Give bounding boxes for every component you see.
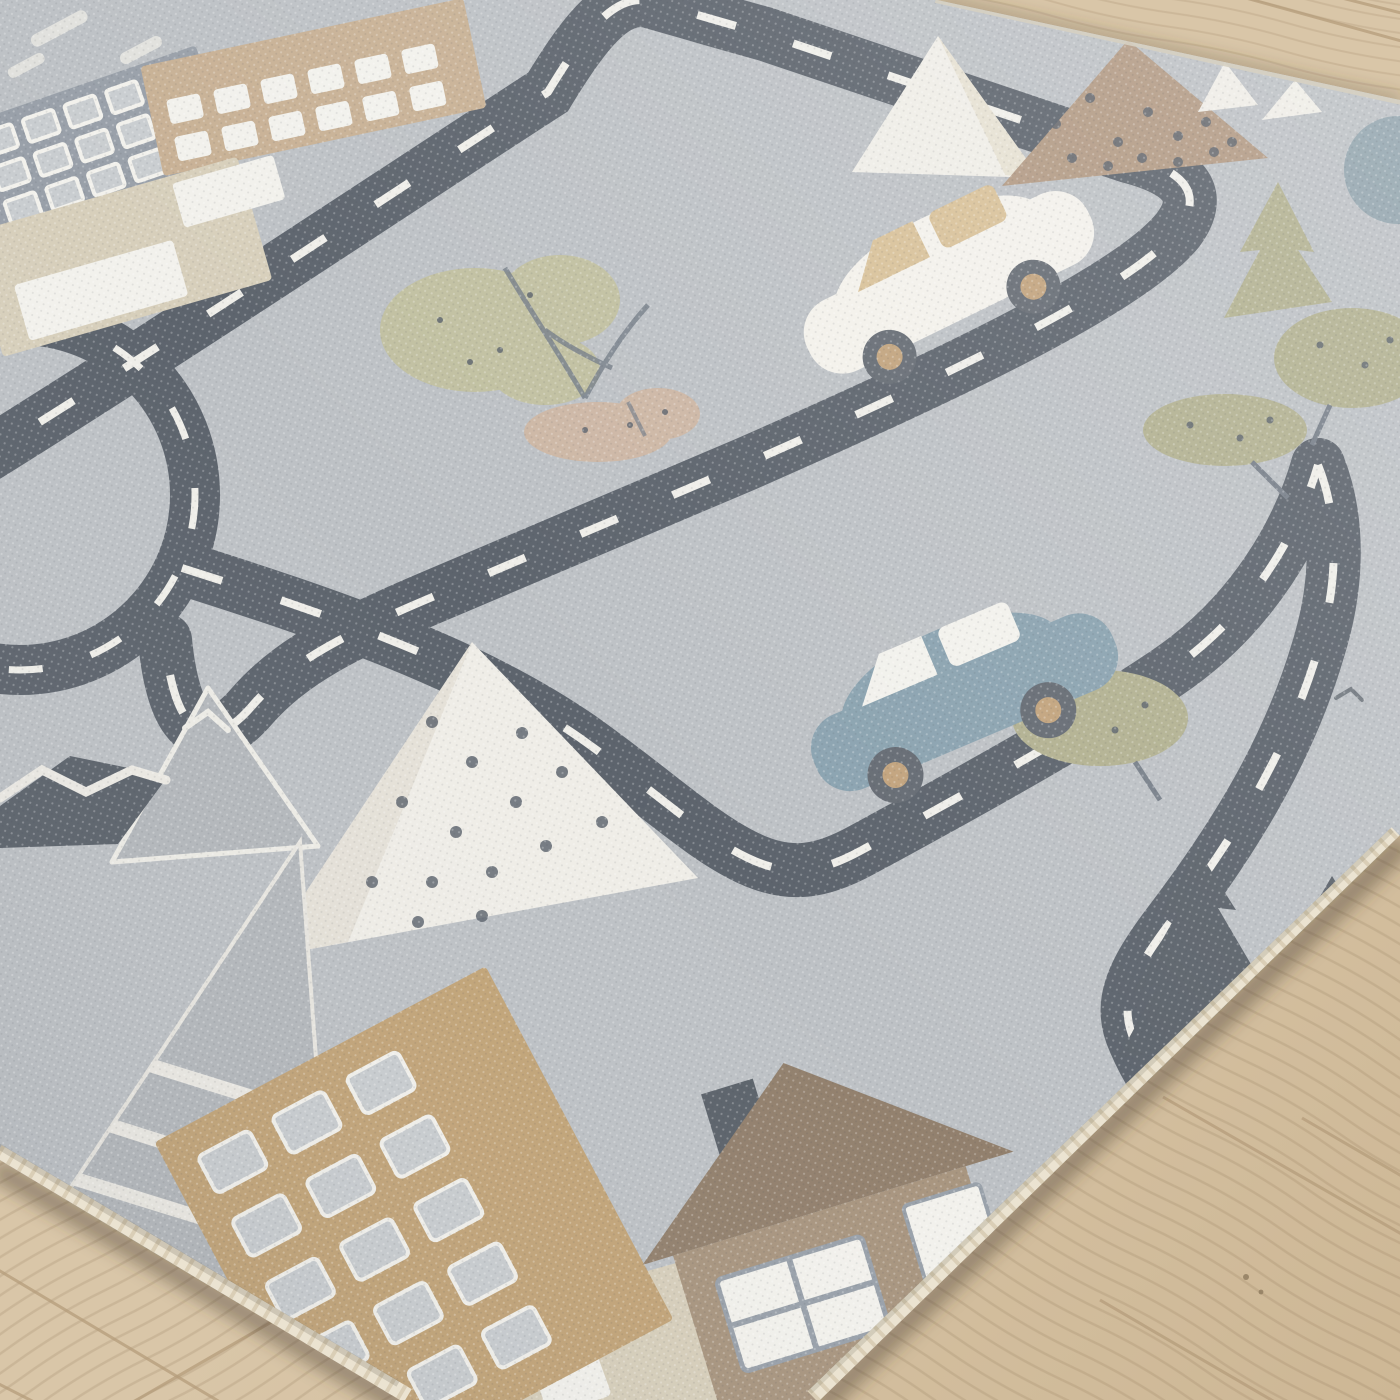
wood-knot — [1259, 1290, 1264, 1295]
rug-scene-illustration — [0, 0, 1400, 1400]
wood-knot — [1243, 1274, 1249, 1280]
rug-photo-scene — [0, 0, 1400, 1400]
